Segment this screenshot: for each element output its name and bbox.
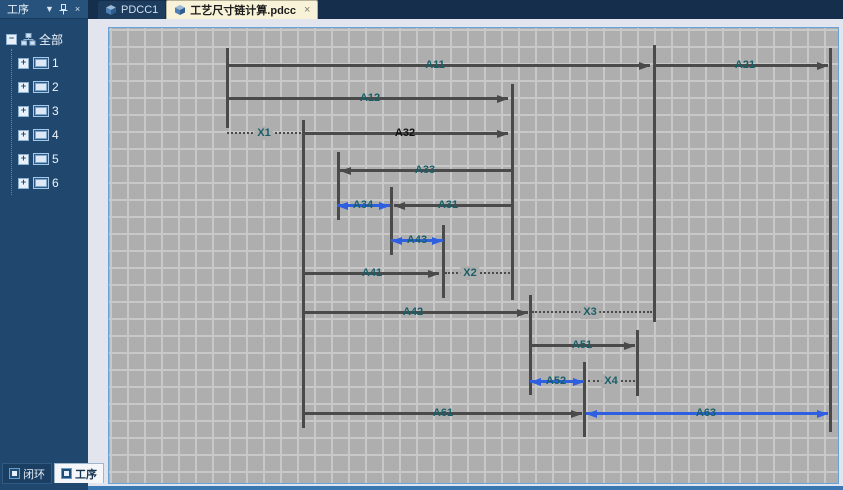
arrowhead-right — [497, 130, 508, 138]
dimension-label: A12 — [360, 91, 380, 105]
dimension-label: A43 — [407, 233, 427, 247]
tree-item-6[interactable]: +6 — [0, 171, 88, 195]
pin-icon[interactable] — [57, 3, 70, 16]
dimension-label: A11 — [425, 58, 445, 72]
tool-window-title: 工序 — [7, 1, 42, 17]
tree-item-label: 4 — [52, 128, 59, 142]
extension-line-1[interactable] — [226, 48, 229, 128]
extension-line-6[interactable] — [511, 84, 514, 300]
document-tab-bar: PDCC1工艺尺寸链计算.pdcc× — [88, 0, 843, 19]
dimension-label: A21 — [735, 58, 755, 72]
window-bottom-edge — [88, 486, 843, 490]
arrowhead-right — [432, 237, 443, 245]
pdcc-application-window: PDCC1工艺尺寸链计算.pdcc× A11A21A12X1A32A33A34A… — [0, 0, 843, 490]
process-step-icon — [33, 177, 49, 189]
tree-item-3[interactable]: +3 — [0, 99, 88, 123]
extension-line-11[interactable] — [829, 48, 832, 432]
tool-window-tab-strip: 闭环工序 — [2, 463, 106, 482]
arrowhead-right — [573, 378, 584, 386]
dimension-label: X2 — [460, 266, 479, 280]
process-step-icon — [33, 153, 49, 165]
arrowhead-left — [586, 410, 597, 418]
arrowhead-right — [497, 95, 508, 103]
tree-item-label: 5 — [52, 152, 59, 166]
dimension-label: A31 — [438, 198, 458, 212]
extension-line-9[interactable] — [636, 330, 639, 396]
arrowhead-right — [571, 410, 582, 418]
arrowhead-left — [340, 167, 351, 175]
dimension-label: A52 — [546, 374, 566, 388]
extension-line-10[interactable] — [653, 45, 656, 322]
arrowhead-left — [337, 202, 348, 210]
tool-window-header[interactable]: 工序 ▼ × — [0, 0, 88, 19]
arrowhead-right — [428, 270, 439, 278]
dimension-label: A33 — [415, 163, 435, 177]
arrowhead-right — [379, 202, 390, 210]
document-tab-label: PDCC1 — [121, 4, 158, 16]
tool-window-tab-icon — [61, 468, 72, 479]
dimension-label: A61 — [433, 406, 453, 420]
tree-collapse-toggle[interactable]: − — [6, 34, 17, 45]
tree-item-label: 1 — [52, 56, 59, 70]
document-icon — [105, 4, 117, 16]
arrowhead-left — [530, 378, 541, 386]
tool-window-tab-1[interactable]: 闭环 — [2, 463, 52, 484]
tree-item-4[interactable]: +4 — [0, 123, 88, 147]
arrowhead-left — [394, 202, 405, 210]
tree-expand-toggle[interactable]: + — [18, 82, 29, 93]
process-tool-window: 工序 ▼ × −全部+1+2+3+4+5+6 — [0, 0, 88, 490]
process-step-icon — [33, 105, 49, 117]
dimension-label: A32 — [395, 126, 415, 140]
close-icon[interactable]: × — [71, 3, 84, 16]
pin-icon-svg — [59, 4, 68, 15]
document-tab-label: 工艺尺寸链计算.pdcc — [190, 2, 296, 18]
arrowhead-right — [817, 62, 828, 70]
chevron-down-icon[interactable]: ▼ — [43, 3, 56, 16]
dimension-label: A51 — [572, 338, 592, 352]
arrowhead-right — [817, 410, 828, 418]
tree-item-label: 6 — [52, 176, 59, 190]
dimension-label: A41 — [362, 266, 382, 280]
tree-item-label: 3 — [52, 104, 59, 118]
tree-item-1[interactable]: +1 — [0, 51, 88, 75]
dimension-label: X1 — [254, 126, 273, 140]
dimension-chain-canvas[interactable] — [108, 27, 839, 484]
tree-item-5[interactable]: +5 — [0, 147, 88, 171]
document-icon — [174, 4, 186, 16]
arrowhead-right — [639, 62, 650, 70]
tool-window-tab-label: 工序 — [75, 466, 97, 482]
tool-window-tab-2[interactable]: 工序 — [54, 463, 104, 483]
extension-line-8[interactable] — [583, 362, 586, 437]
process-tree: −全部+1+2+3+4+5+6 — [0, 19, 88, 195]
dimension-label: A34 — [353, 198, 373, 212]
tree-expand-toggle[interactable]: + — [18, 106, 29, 117]
tool-window-tab-icon — [9, 468, 20, 479]
document-tab-2[interactable]: 工艺尺寸链计算.pdcc× — [166, 0, 318, 19]
tree-expand-toggle[interactable]: + — [18, 178, 29, 189]
tree-expand-toggle[interactable]: + — [18, 154, 29, 165]
arrowhead-left — [391, 237, 402, 245]
dimension-label: A42 — [403, 305, 423, 319]
tree-expand-toggle[interactable]: + — [18, 58, 29, 69]
tree-expand-toggle[interactable]: + — [18, 130, 29, 141]
tool-window-tab-label: 闭环 — [23, 466, 45, 482]
arrowhead-right — [624, 342, 635, 350]
arrowhead-right — [517, 309, 528, 317]
tab-close-icon[interactable]: × — [304, 4, 310, 16]
tree-root-item[interactable]: −全部 — [0, 27, 88, 51]
process-step-icon — [33, 81, 49, 93]
dimension-label: X3 — [580, 305, 599, 319]
extension-line-5[interactable] — [442, 225, 445, 298]
dimension-label: X4 — [601, 374, 620, 388]
tree-item-2[interactable]: +2 — [0, 75, 88, 99]
dimension-label: A63 — [696, 406, 716, 420]
hierarchy-icon — [21, 33, 36, 46]
tree-item-label: 2 — [52, 80, 59, 94]
process-step-icon — [33, 129, 49, 141]
process-step-icon — [33, 57, 49, 69]
document-tab-1[interactable]: PDCC1 — [98, 1, 165, 19]
tree-root-label: 全部 — [39, 31, 63, 48]
